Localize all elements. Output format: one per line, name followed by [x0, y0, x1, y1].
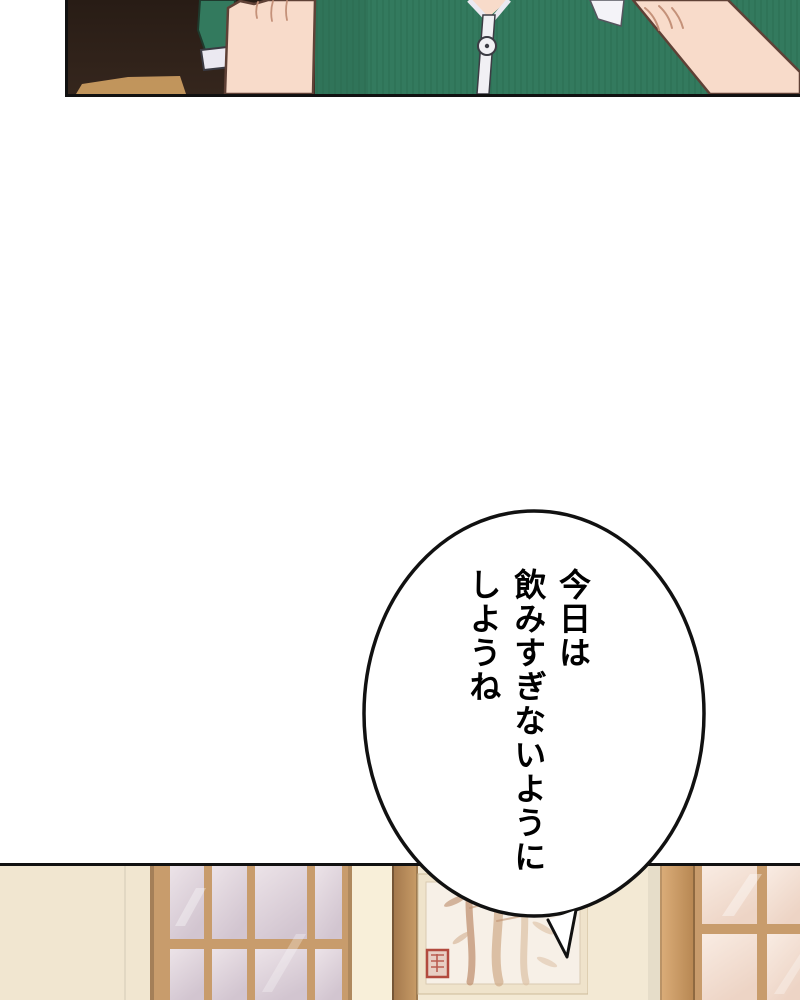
left-shoji-door — [150, 866, 352, 1000]
speech-bubble-tail — [548, 910, 576, 957]
bubble-line-3: しようね — [461, 568, 506, 878]
bubble-line-2: 飲みすぎないように — [505, 568, 550, 878]
left-forearm — [225, 0, 315, 94]
bubble-line-1: 今日は — [550, 568, 595, 878]
top-panel-art — [68, 0, 800, 94]
wall-left — [0, 866, 150, 1000]
comic-page: 今日は 飲みすぎないように しようね — [0, 0, 800, 1000]
panel-top — [65, 0, 800, 97]
shoji-panes-left — [170, 866, 342, 1000]
speech-bubble-text: 今日は 飲みすぎないように しようね — [455, 568, 595, 878]
